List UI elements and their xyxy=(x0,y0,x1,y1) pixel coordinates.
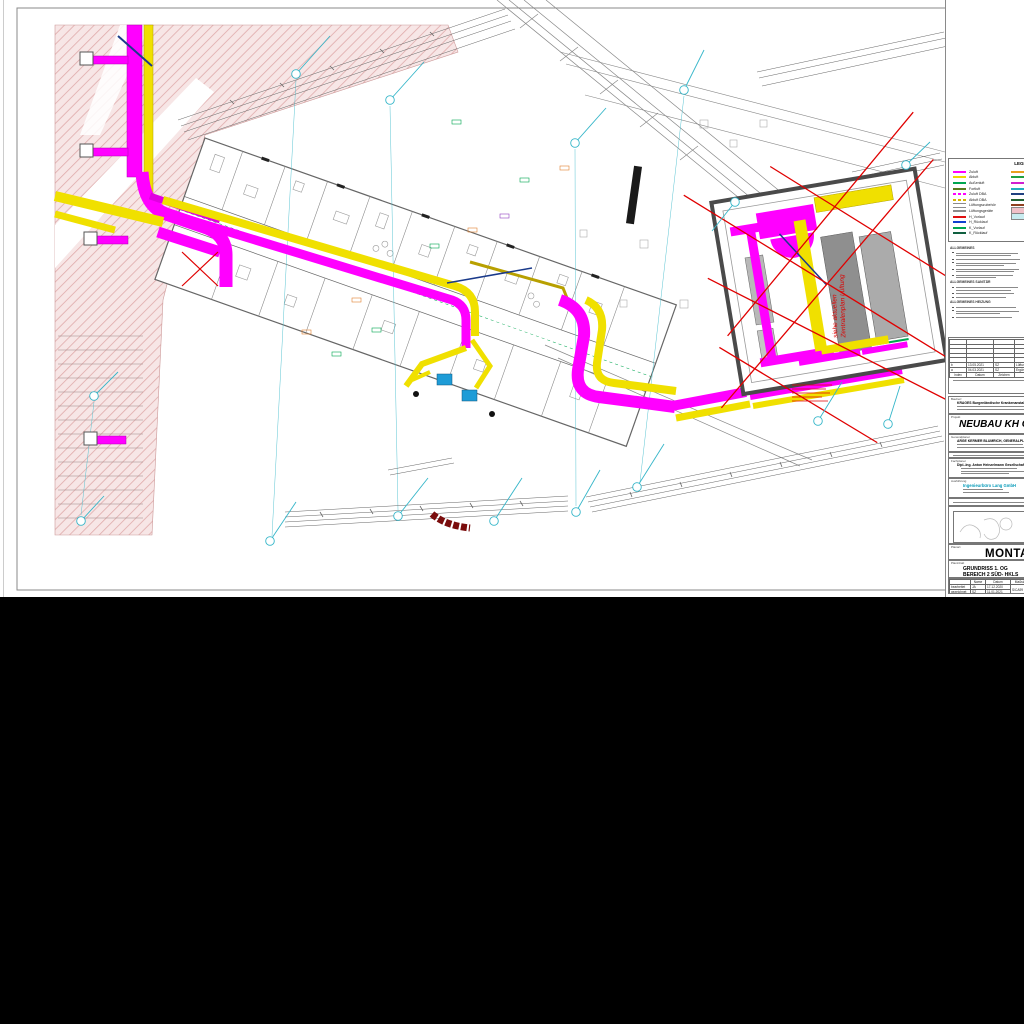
engineer-label: Fachplaner xyxy=(951,460,966,463)
legend-entry xyxy=(1011,214,1024,220)
revision-header-row: IndexDatum ZeichenÄnderung xyxy=(950,372,1024,377)
notes-general-title: ALLGEMEINES xyxy=(950,246,1024,250)
legend-box: LEGENDE-HKLS Zuluft Abluft Außenluft For… xyxy=(948,158,1024,242)
notes-heating-title: ALLGEMEINES HEIZUNG xyxy=(950,300,1024,304)
notes-sanitary-title: ALLGEMEINES SANITÄR xyxy=(950,280,1024,284)
plan-content-box: Planinhalt GRUNDRISS 1. OG BEREICH 2 SÜD… xyxy=(948,560,1024,578)
project-label: Projekt xyxy=(951,416,960,419)
legend-swatch xyxy=(953,193,966,195)
legend-swatch xyxy=(953,176,966,178)
engineer-box: Fachplaner Dipl.-Ing. Anton Heinzelmann … xyxy=(948,458,1024,478)
legend-swatch xyxy=(1011,199,1024,201)
meta-row: bearbeitetJA 17.12.2020 S/CA99 HKL xyxy=(950,585,1024,590)
legend-swatch xyxy=(953,227,966,229)
legend-swatch xyxy=(953,203,966,208)
legend-left-column: Zuluft Abluft Außenluft Fortluft Zuluft … xyxy=(953,169,1009,236)
planner-label: Generalplaner xyxy=(951,436,970,439)
legend-swatch xyxy=(1011,176,1024,178)
legend-swatch xyxy=(1011,204,1024,206)
keyplan-box xyxy=(948,506,1024,544)
planner-box: Generalplaner ARGE KERMER BLUMRICH, GENE… xyxy=(948,434,1024,452)
notes-box: ALLGEMEINES ALLGEMEINES SANITÄR ALLGEMEI… xyxy=(948,244,1024,336)
legend-swatch xyxy=(953,216,966,218)
plan-type-title: MONTAGEPLAN xyxy=(985,548,1024,560)
legend-swatch xyxy=(953,171,966,173)
contractor-label: Ausführung xyxy=(951,480,966,483)
legend-swatch xyxy=(1011,213,1024,220)
legend-swatch xyxy=(953,182,966,184)
meta-table: Name Datum Maßstab Gew. bearbeitetJA 17.… xyxy=(949,579,1024,594)
tech-note-line1: siehe aktuellen xyxy=(831,294,839,338)
planner-name: ARGE KERMER BLUMRICH, GENERALPLANUNG xyxy=(957,439,1024,443)
revision-table: b13.05.2021 SZLüftungszentrale angepasst… xyxy=(949,339,1024,378)
keyplan-thumbnail xyxy=(953,511,1024,543)
meta-table-box: Name Datum Maßstab Gew. bearbeitetJA 17.… xyxy=(948,578,1024,594)
revision-table-box: b13.05.2021 SZLüftungszentrale angepasst… xyxy=(948,337,1024,394)
project-title: NEUBAU KH OBERWART xyxy=(959,419,1024,430)
title-block: LEGENDE-HKLS Zuluft Abluft Außenluft For… xyxy=(945,0,1024,597)
legend-right-column xyxy=(1011,169,1024,219)
filepath-box xyxy=(948,498,1024,506)
drawing-sheet: siehe aktuellen Zentralenplan Lüftung xyxy=(0,0,1024,597)
engineer-name: Dipl.-Ing. Anton Heinzelmann Gesellschaf… xyxy=(957,463,1024,467)
project-box: Projekt NEUBAU KH OBERWART xyxy=(948,414,1024,434)
owner-box: Bauherr KRAGES Burgenländische Krankenan… xyxy=(948,396,1024,414)
plan-type-box: Planart MONTAGEPLAN xyxy=(948,544,1024,560)
legend-swatch xyxy=(953,210,966,212)
legend-entry: K_Rücklauf xyxy=(953,231,1009,237)
legend-swatch xyxy=(1011,193,1024,195)
contractor-box: Ausführung Ingenieurbüro Lang GmbH xyxy=(948,478,1024,498)
legend-swatch xyxy=(953,199,966,201)
viewer-background xyxy=(0,597,1024,1024)
shaft-block xyxy=(626,166,642,225)
legend-swatch xyxy=(953,232,966,234)
floor-plan-canvas: siehe aktuellen Zentralenplan Lüftung xyxy=(0,0,945,597)
legend-swatch xyxy=(953,188,966,190)
plan-content-label: Planinhalt xyxy=(951,562,964,565)
contractor-name: Ingenieurbüro Lang GmbH xyxy=(963,483,1024,488)
legend-swatch xyxy=(1011,182,1024,184)
legend-swatch xyxy=(1011,171,1024,173)
owner-label: Bauherr xyxy=(951,398,962,401)
demolition-wall xyxy=(432,514,470,528)
legend-title: LEGENDE-HKLS xyxy=(949,161,1024,166)
owner-name: KRAGES Burgenländische Krankenanstalten-… xyxy=(957,401,1024,405)
legend-swatch xyxy=(953,221,966,223)
legend-swatch xyxy=(1011,188,1024,190)
plan-type-label: Planart xyxy=(951,546,961,549)
